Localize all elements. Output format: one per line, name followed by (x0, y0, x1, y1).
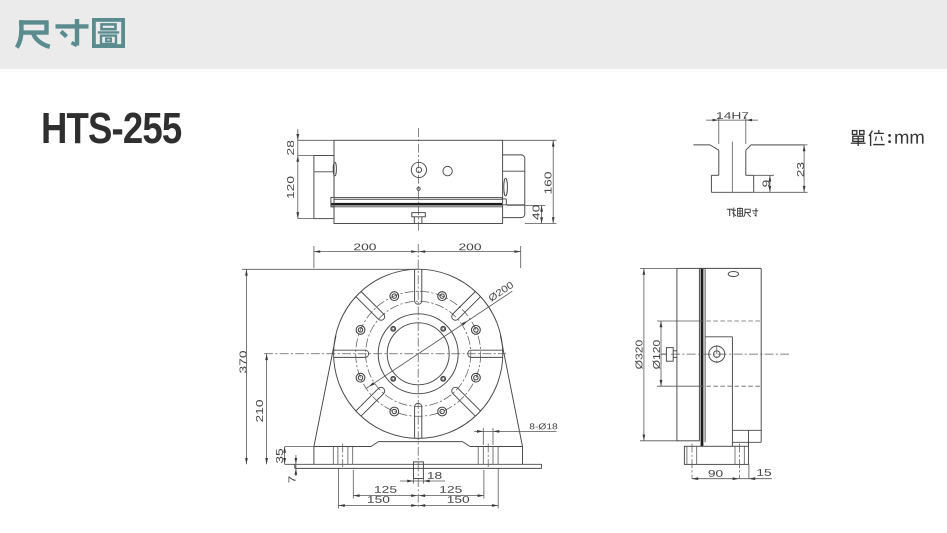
svg-text:370: 370 (238, 350, 249, 373)
svg-text:200: 200 (353, 241, 376, 252)
svg-text:40: 40 (531, 204, 542, 220)
svg-text:14H7: 14H7 (716, 110, 749, 121)
svg-text:210: 210 (254, 399, 265, 422)
svg-text:8-Ø18: 8-Ø18 (529, 422, 557, 431)
svg-text:160: 160 (542, 171, 553, 194)
svg-text:18: 18 (427, 470, 443, 481)
svg-text:7: 7 (286, 475, 297, 483)
svg-text:9: 9 (760, 179, 771, 187)
svg-text:150: 150 (367, 494, 390, 505)
svg-text:Ø320: Ø320 (635, 340, 646, 370)
svg-text:15: 15 (756, 467, 772, 478)
svg-text:Ø120: Ø120 (652, 340, 663, 370)
svg-text:28: 28 (285, 140, 296, 156)
svg-text:23: 23 (795, 162, 806, 178)
svg-text:90: 90 (708, 468, 724, 479)
svg-text:200: 200 (459, 241, 482, 252)
svg-text:35: 35 (274, 448, 285, 464)
svg-text:150: 150 (447, 494, 470, 505)
svg-text:120: 120 (285, 176, 296, 199)
